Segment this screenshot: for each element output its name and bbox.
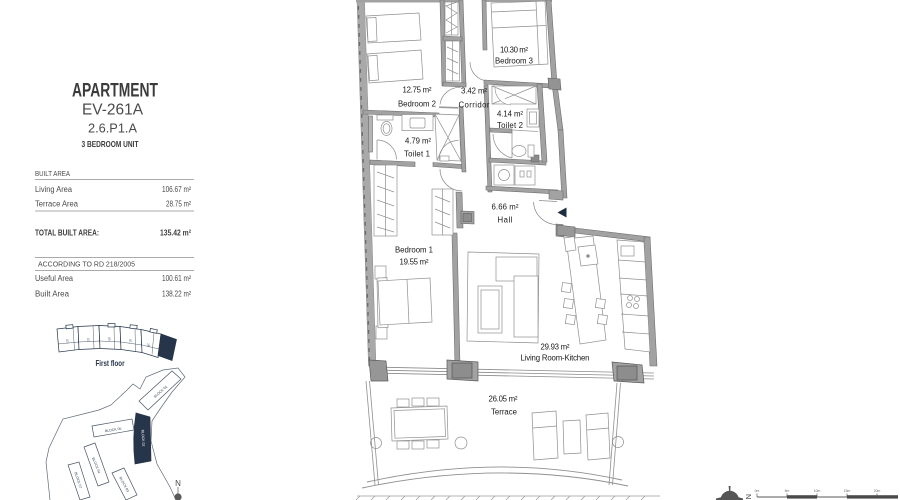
svg-text:5m: 5m <box>785 489 790 493</box>
svg-text:Hall: Hall <box>498 216 513 225</box>
svg-text:4.79 m²: 4.79 m² <box>405 137 431 146</box>
svg-text:15m: 15m <box>844 489 851 493</box>
svg-text:APARTMENT: APARTMENT <box>72 81 158 102</box>
svg-text:3.42 m²: 3.42 m² <box>461 87 487 96</box>
svg-text:First floor: First floor <box>96 358 126 368</box>
svg-text:Living Room-Kitchen: Living Room-Kitchen <box>521 354 590 363</box>
svg-text:29.93 m²: 29.93 m² <box>541 343 570 352</box>
svg-text:Toilet 2: Toilet 2 <box>497 121 523 130</box>
svg-text:N: N <box>175 479 181 488</box>
svg-text:Corridor: Corridor <box>459 101 490 110</box>
svg-text:106.67 m²: 106.67 m² <box>162 185 191 194</box>
svg-text:12.75 m²: 12.75 m² <box>403 86 432 95</box>
svg-text:138.22 m²: 138.22 m² <box>162 290 191 299</box>
svg-text:EV-261A: EV-261A <box>82 102 143 119</box>
svg-text:20m: 20m <box>874 489 881 493</box>
svg-text:10m: 10m <box>814 489 821 493</box>
svg-text:Terrace: Terrace <box>491 408 517 417</box>
svg-text:BUILT AREA: BUILT AREA <box>35 169 70 178</box>
svg-text:Bedroom 2: Bedroom 2 <box>398 100 436 109</box>
svg-text:TOTAL BUILT AREA:: TOTAL BUILT AREA: <box>35 229 99 238</box>
svg-text:0m: 0m <box>755 489 760 493</box>
svg-text:135.42 m²: 135.42 m² <box>160 229 191 238</box>
svg-text:ACCORDING TO RD 218/2005: ACCORDING TO RD 218/2005 <box>38 260 135 269</box>
svg-text:2B: 2B <box>146 343 151 348</box>
svg-text:Terrace Area: Terrace Area <box>35 200 79 209</box>
svg-text:6.66 m²: 6.66 m² <box>492 203 519 212</box>
svg-text:N: N <box>744 494 753 499</box>
svg-text:Toilet 1: Toilet 1 <box>404 150 430 159</box>
svg-text:Built Area: Built Area <box>35 290 70 299</box>
svg-text:Bedroom 3: Bedroom 3 <box>495 57 533 66</box>
svg-text:26.05 m²: 26.05 m² <box>489 395 518 404</box>
svg-text:100.61 m²: 100.61 m² <box>162 274 191 283</box>
svg-text:Useful Area: Useful Area <box>35 274 74 283</box>
svg-text:2.6.P1.A: 2.6.P1.A <box>88 121 137 136</box>
svg-text:3 BEDROOM UNIT: 3 BEDROOM UNIT <box>82 139 139 149</box>
svg-text:Living Area: Living Area <box>35 185 73 194</box>
svg-text:28.75 m²: 28.75 m² <box>166 200 191 209</box>
svg-text:10.30 m²: 10.30 m² <box>500 46 528 55</box>
svg-text:Bedroom 1: Bedroom 1 <box>395 246 433 255</box>
svg-text:19.55 m²: 19.55 m² <box>400 258 429 267</box>
svg-text:4.14 m²: 4.14 m² <box>497 110 523 119</box>
